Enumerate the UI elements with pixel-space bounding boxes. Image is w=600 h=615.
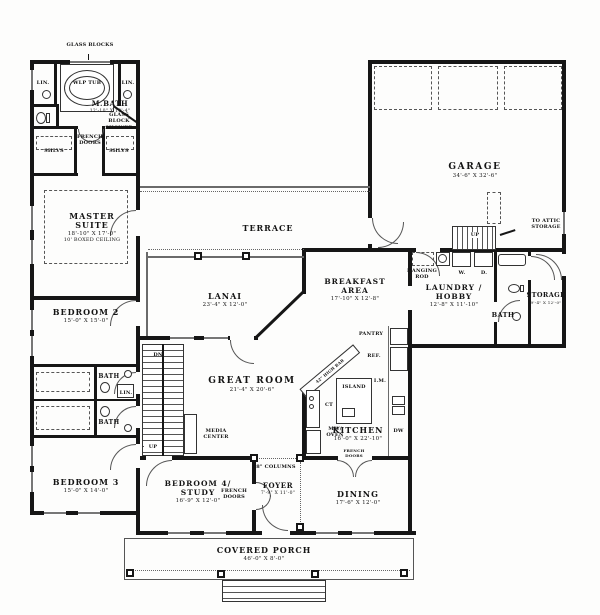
window (168, 531, 190, 535)
terrace-edge (148, 249, 304, 250)
kitchen-sink (392, 396, 405, 405)
wall (34, 173, 78, 176)
window (204, 531, 226, 535)
terrace-top-edge (140, 191, 370, 192)
room-label-foyer: FOYER 7'-9" X 11'-0" (256, 482, 300, 496)
room-label-master-suite: MASTER SUITE 18'-10" X 17'-0" 10' BOXED … (56, 212, 128, 243)
room-label-bedroom-2: BEDROOM 2 15'-0" X 15'-0" (48, 308, 124, 324)
room-label-laundry-hobby: LAUNDRY / HOBBY 12'-8" X 11'-10" (418, 284, 490, 308)
room-name: COVERED PORCH (214, 546, 314, 555)
wall (494, 322, 497, 348)
window (30, 240, 34, 264)
stairs-up-label: UP (144, 444, 162, 450)
porch-rail (128, 570, 410, 571)
room-dims: 21'-4" X 20'-6" (204, 387, 300, 393)
kitchen-sink (392, 406, 405, 415)
wall (30, 399, 138, 401)
wall (30, 364, 138, 367)
bedroom-3-door (110, 444, 136, 470)
wall (136, 531, 262, 535)
stairs-dn-label: DN (148, 352, 168, 358)
wall (302, 248, 378, 252)
room-label-lanai: LANAI 23'-4" X 12'-0" (190, 292, 260, 308)
room-dims: 9'-4" X 12'-0" (526, 300, 566, 305)
floor-plan: WLP TUB 42" HIGH BAR M.BATH 12'-10" X 10 (0, 0, 600, 615)
wlp-tub-label: WLP TUB (72, 80, 102, 86)
hanging-rod-label: HANGING ROD (404, 268, 440, 281)
burner (309, 404, 314, 409)
window (204, 336, 228, 340)
glass-block-shower-label: GLASS BLOCK SHOWER (102, 112, 136, 131)
room-label-dining: DINING 17'-6" X 12'-0" (326, 490, 390, 506)
porch-column (126, 569, 134, 577)
french-doors-label: FRENCH DOORS (218, 488, 250, 501)
wall (56, 104, 59, 126)
lanai-post (242, 252, 250, 260)
room-name: MASTER SUITE (56, 212, 128, 230)
colonnade-line (300, 462, 301, 528)
window (316, 531, 338, 535)
room-name: FOYER (256, 482, 300, 490)
wall (562, 276, 566, 348)
closet-rod (36, 372, 90, 392)
lanai-screen-wall (148, 256, 304, 258)
pantry-label: PANTRY (356, 331, 386, 337)
wall (494, 252, 497, 302)
cooktop-label: CT (322, 402, 336, 408)
room-name: BATH (490, 312, 516, 319)
toilet (100, 406, 110, 417)
wall (408, 344, 566, 348)
columns-label: 8" COLUMNS (252, 464, 300, 470)
shelves-label: SHLVS (38, 148, 70, 154)
lanai-diagonal-wall (255, 291, 305, 339)
laundry-sink-bowl (438, 254, 447, 263)
wall (372, 456, 412, 460)
wall (34, 104, 59, 107)
window (78, 511, 100, 515)
porch-column (311, 570, 319, 578)
burner (309, 396, 314, 401)
dryer-label: D. (478, 270, 490, 276)
sink (42, 90, 51, 99)
room-label-covered-porch: COVERED PORCH 46'-0" X 8'-0" (214, 546, 314, 562)
french-door (337, 460, 354, 477)
glass-blocks-label: GLASS BLOCKS (62, 42, 118, 48)
wall (140, 456, 146, 460)
microwave-oven-cabinet (306, 430, 321, 454)
linen-label: LIN. (118, 390, 134, 396)
toilet-tank (46, 113, 50, 123)
porch-steps (222, 580, 326, 602)
room-name: STORAGE (526, 292, 566, 299)
wall (408, 310, 412, 460)
mw-oven-label: MW/ OVEN (322, 426, 348, 439)
wall (34, 126, 78, 129)
toilet (100, 382, 110, 393)
window (30, 336, 34, 356)
room-name: GREAT ROOM (204, 376, 300, 386)
porch-column (400, 569, 408, 577)
attic-arrow (500, 229, 516, 236)
room-note: 10' BOXED CEILING (56, 237, 128, 243)
room-dims: 17'-10" X 12'-8" (322, 296, 388, 302)
window (44, 511, 66, 515)
window (170, 336, 194, 340)
washer-label: W. (456, 270, 468, 276)
to-attic-storage-label: TO ATTIC STORAGE (520, 218, 572, 231)
room-label-garage: GARAGE 34'-6" X 32'-6" (440, 162, 510, 179)
room-name: BEDROOM 2 (48, 308, 124, 317)
wall (30, 435, 138, 438)
room-name: BEDROOM 3 (44, 478, 128, 487)
room-label-bath-upper: BATH (92, 374, 126, 381)
room-label-breakfast-area: BREAKFAST AREA 17'-10" X 12'-8" (322, 278, 388, 302)
toilet-tank (520, 285, 524, 292)
wall (102, 173, 136, 176)
dishwasher-label: DW (391, 428, 406, 434)
glass-blocks-pointer (88, 54, 89, 60)
room-name: LANAI (190, 292, 260, 301)
pantry-cabinet (390, 328, 408, 345)
back-door (536, 254, 562, 280)
lanai-post (194, 252, 202, 260)
room-dims: 23'-4" X 12'-0" (190, 302, 260, 308)
french-doors-label: FRENCH DOORS (336, 448, 372, 458)
terrace-top-edge (140, 186, 370, 188)
window (352, 531, 374, 535)
room-dims: 15'-0" X 14'-0" (44, 488, 128, 494)
wall (54, 64, 57, 106)
refrigerator-label: REF. (362, 353, 386, 359)
room-dims: 17'-6" X 12'-0" (326, 500, 390, 506)
ice-maker-label: I.M. (372, 378, 388, 384)
window (30, 446, 34, 466)
media-center-label: MEDIA CENTER (198, 428, 234, 441)
garage-post (487, 192, 501, 224)
room-label-bath-lower: BATH (92, 420, 126, 427)
room-name: BREAKFAST AREA (322, 278, 388, 295)
room-label-terrace: TERRACE (238, 224, 298, 233)
linen-label: LIN. (34, 80, 52, 86)
window (30, 472, 34, 492)
room-dims: 34'-6" X 32'-6" (440, 173, 510, 179)
column (296, 523, 304, 531)
window (30, 206, 34, 230)
toilet (508, 284, 520, 293)
room-label-great-room: GREAT ROOM 21'-4" X 20'-6" (204, 376, 300, 393)
garage-side-door (372, 218, 398, 244)
wall (368, 60, 566, 64)
washer (452, 252, 471, 267)
room-dims: 12'-8" X 11'-10" (418, 302, 490, 308)
lanai-door (230, 340, 254, 364)
wall (368, 60, 372, 218)
room-name: GARAGE (440, 162, 510, 172)
french-doors-label: FRENCH DOORS (72, 134, 108, 147)
wall (402, 248, 412, 252)
room-name: LAUNDRY / HOBBY (418, 284, 490, 301)
dryer (474, 252, 493, 267)
wall (408, 460, 412, 535)
window (30, 310, 34, 330)
shelves-label: SHLVS (104, 148, 134, 154)
refrigerator-box (390, 347, 408, 371)
front-door (262, 505, 288, 531)
garage-door-outline (374, 66, 432, 110)
room-dims: 7'-9" X 11'-0" (256, 491, 300, 496)
room-label-bath: BATH (490, 312, 516, 319)
wall (302, 456, 338, 460)
room-label-bedroom-3: BEDROOM 3 15'-0" X 14'-0" (44, 478, 128, 494)
room-label-storage: STORAGE 9'-4" X 12'-0" (526, 292, 566, 305)
garage-door-outline (504, 66, 562, 110)
porch-column (217, 570, 225, 578)
island-sink (342, 408, 355, 417)
sink (123, 90, 132, 99)
bathtub (498, 254, 526, 266)
closet-rod (36, 406, 90, 430)
french-door (355, 460, 372, 477)
room-dims: 46'-0" X 8'-0" (214, 556, 314, 562)
room-name: DINING (326, 490, 390, 499)
hanging-rod (412, 252, 434, 266)
wall (252, 510, 256, 531)
column (296, 454, 304, 462)
linen-label: LIN. (120, 80, 136, 86)
wall (172, 456, 256, 460)
room-name: TERRACE (238, 224, 298, 233)
wall (30, 296, 140, 300)
island-label: ISLAND (340, 384, 368, 390)
attic-up-label: UP (468, 232, 482, 238)
wall (136, 236, 140, 302)
lanai-screen-wall (146, 252, 148, 336)
toilet (36, 112, 46, 124)
wall (136, 468, 140, 535)
wall (302, 248, 306, 294)
room-name: M.BATH (84, 100, 136, 108)
column (250, 454, 258, 462)
room-name: BATH (92, 420, 126, 427)
stair-rail (162, 344, 164, 456)
room-name: BATH (92, 374, 126, 381)
room-dims: 15'-0" X 15'-0" (48, 318, 124, 324)
garage-door-outline (438, 66, 498, 110)
media-center-cabinet (184, 414, 197, 454)
